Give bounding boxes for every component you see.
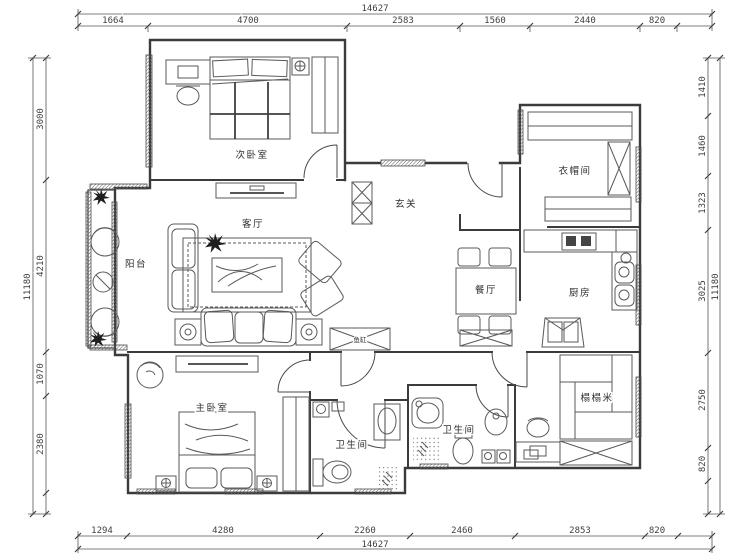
balcony-outline [88, 190, 115, 348]
dim-left-seg-3: 1070 [36, 363, 46, 385]
bath2-shower-floor [413, 437, 441, 463]
room-label-living-room: 客厅 [242, 218, 264, 230]
room-label-tatami: 榻榻米 [580, 392, 613, 404]
dim-bottom-seg-2: 4280 [212, 526, 234, 536]
dim-right-seg-5: 2750 [698, 389, 708, 411]
dining-chair-1 [458, 248, 480, 266]
fish-tank-label: 鱼缸 [354, 335, 368, 344]
dim-bottom-total: 14627 [361, 540, 388, 550]
dimension-chain-left: 3000 4210 1070 2380 11180 [23, 55, 51, 517]
room-label-master-bedroom: 主卧室 [195, 402, 228, 414]
dim-top-seg-4: 1560 [484, 16, 506, 26]
bed-double [210, 57, 290, 139]
sink-basin-2 [615, 285, 634, 306]
armchair-1 [297, 240, 343, 285]
lamp-table-right [296, 319, 322, 345]
dimension-chain-right: 1410 1460 1323 3025 2750 820 11180 [698, 55, 725, 517]
fridge [542, 318, 584, 347]
exterior-walls [88, 40, 640, 493]
dim-left-seg-4: 2380 [36, 433, 46, 455]
dim-bottom-seg-5: 2853 [569, 526, 591, 536]
bath2-heater-1 [482, 450, 495, 463]
furniture-secondary-bedroom [166, 57, 338, 139]
window-bedroom2-west [146, 55, 152, 167]
window-east-tatami [636, 377, 641, 437]
plant-balcony-top [93, 189, 110, 205]
dimension-chain-bottom: 1294 4280 2260 2460 2853 820 14627 [75, 526, 715, 553]
room-label-foyer: 玄关 [395, 198, 417, 210]
window-balcony-south [90, 345, 127, 350]
window-foyer-north [381, 160, 425, 166]
dim-left-seg-2: 4210 [36, 255, 46, 277]
tatami-chair [527, 419, 549, 437]
desk-and-chair [166, 60, 210, 105]
dining-chair-2 [489, 248, 511, 266]
door-tatami [492, 352, 527, 387]
dim-bottom-seg-3: 2260 [354, 526, 376, 536]
room-label-balcony: 阳台 [125, 258, 147, 270]
bath1-shower-floor [376, 466, 399, 491]
window-bath2-south [420, 464, 448, 469]
dim-top-seg-2: 4700 [237, 16, 259, 26]
window-east-cloakroom [636, 147, 641, 202]
dimension-chain-top: 14627 1664 4700 2583 1560 2440 820 [75, 4, 715, 32]
dim-top-total: 14627 [361, 4, 388, 14]
windows [86, 55, 641, 494]
dim-top-seg-5: 2440 [574, 16, 596, 26]
lamp-table-left [175, 319, 201, 345]
dim-top-seg-3: 2583 [392, 16, 414, 26]
dim-left-total: 11180 [23, 273, 33, 300]
master-chair [137, 362, 163, 388]
dim-bottom-seg-1: 1294 [91, 526, 113, 536]
dim-right-seg-1: 1410 [698, 76, 708, 98]
bed-master [179, 412, 255, 492]
furniture-master-bedroom [137, 356, 309, 492]
room-label-dining-room: 餐厅 [475, 284, 497, 296]
window-balcony-west [86, 192, 91, 346]
corner-unit [616, 230, 637, 252]
sink-basin-1 [615, 262, 634, 283]
nightstand [292, 58, 309, 75]
window-cloakroom-west [518, 110, 523, 154]
dim-right-seg-4: 3025 [698, 280, 708, 302]
room-label-bathroom-2: 卫生间 [442, 424, 475, 436]
room-label-cloakroom: 衣帽间 [558, 165, 591, 177]
door-master-bedroom [278, 360, 310, 392]
room-label-kitchen: 厨房 [569, 287, 591, 299]
dining-chair-3 [458, 316, 480, 334]
window-living-balcony [112, 202, 117, 342]
furniture-foyer [352, 182, 372, 224]
furniture-tatami-room [516, 355, 632, 465]
bath2-tub [412, 398, 443, 428]
dim-bottom-seg-4: 2460 [451, 526, 473, 536]
dim-right-seg-6: 820 [698, 456, 708, 472]
dim-left-seg-1: 3000 [36, 108, 46, 130]
tv-cabinet [216, 183, 296, 198]
bath2-heater-2 [497, 450, 510, 463]
window-master-west [125, 404, 131, 478]
room-label-secondary-bedroom: 次卧室 [235, 149, 268, 161]
dim-top-seg-1: 1664 [102, 16, 124, 26]
furniture-dining-room [456, 248, 516, 346]
dim-top-seg-6: 820 [649, 16, 665, 26]
wardrobe-master [283, 397, 309, 491]
door-bedroom2 [304, 145, 337, 178]
dim-right-total: 11180 [711, 273, 721, 300]
window-balcony-north [90, 184, 147, 189]
bath1-toilet [313, 459, 351, 486]
doors [278, 145, 527, 448]
dim-bottom-seg-6: 820 [649, 526, 665, 536]
door-hallway [341, 352, 375, 386]
sofa-set [168, 224, 345, 346]
dim-right-seg-3: 1323 [698, 192, 708, 214]
fish-tank-cabinet: 鱼缸 [330, 328, 390, 350]
door-entry [468, 163, 502, 197]
room-label-bathroom-1: 卫生间 [335, 439, 368, 451]
wardrobe [312, 57, 338, 133]
floor-plan-drawing: 14627 1664 4700 2583 1560 2440 820 1294 … [0, 0, 740, 555]
dim-right-seg-2: 1460 [698, 135, 708, 157]
rug-and-coffee-table [183, 238, 311, 312]
floor-plan-page: 14627 1664 4700 2583 1560 2440 820 1294 … [0, 0, 740, 555]
